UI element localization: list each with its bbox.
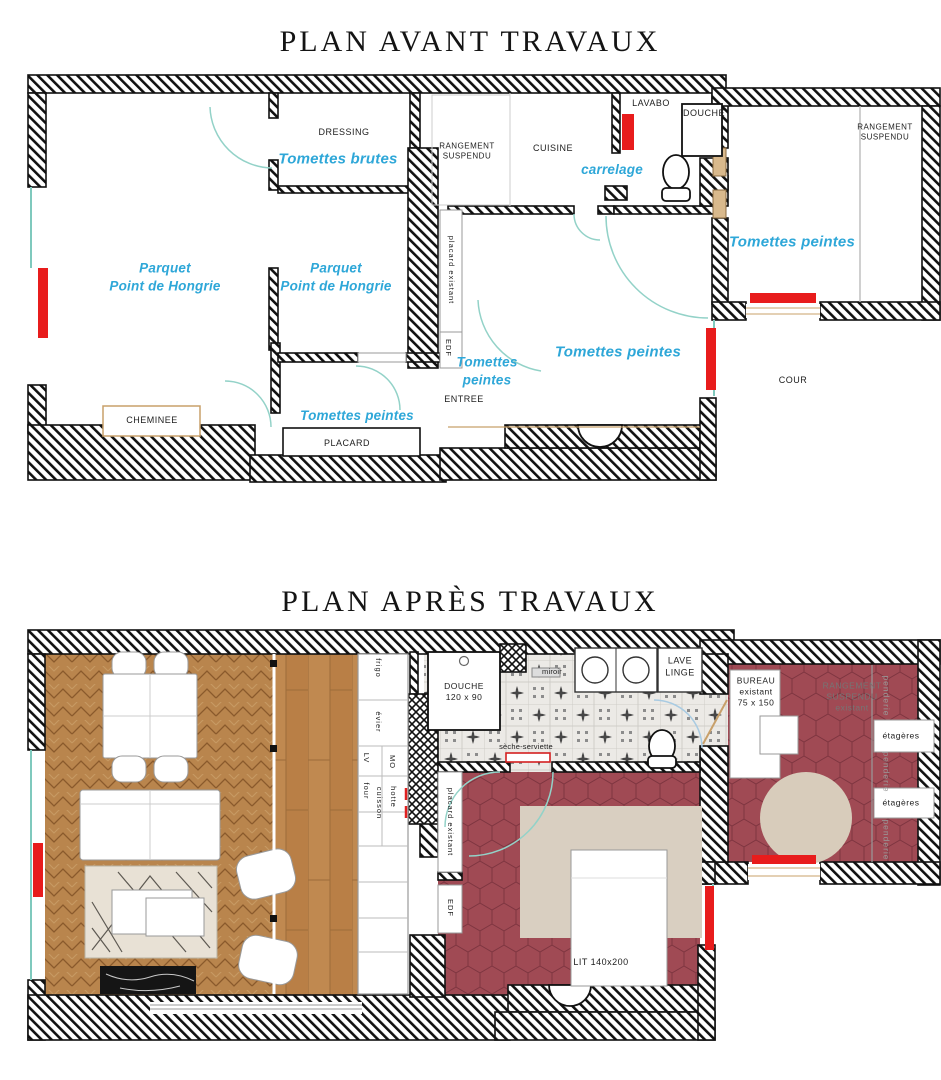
- label-douche-before: DOUCHE: [683, 108, 725, 120]
- label-tomettes-peintes-entree-1: Tomettes peintes: [456, 353, 517, 388]
- label-tomettes-brutes: Tomettes brutes: [278, 149, 397, 169]
- radiator: [622, 114, 634, 150]
- label-evier: évier: [373, 711, 383, 732]
- title-plan-before: PLAN AVANT TRAVAUX: [280, 25, 661, 59]
- chair: [112, 756, 146, 782]
- towel-warmer: [506, 753, 550, 762]
- label-rangement-suspendu-left: RANGEMENT SUSPENDU: [439, 142, 495, 163]
- label-parquet-hongrie-2: Parquet Point de Hongrie: [280, 259, 391, 294]
- basin: [582, 657, 608, 683]
- radiator: [705, 886, 714, 950]
- label-etageres-1: étagères: [882, 730, 919, 741]
- label-dressing: DRESSING: [318, 127, 369, 139]
- label-placard-existant-after: placard existant: [445, 788, 455, 857]
- radiator: [38, 268, 48, 338]
- label-lv: LV: [361, 753, 371, 764]
- label-placard: PLACARD: [324, 438, 370, 450]
- label-bureau: BUREAU existant 75 x 150: [737, 675, 775, 708]
- label-rangement-suspendu-right: RANGEMENT SUSPENDU: [857, 123, 913, 144]
- label-frigo: frigo: [373, 658, 383, 678]
- label-penderie-3: penderie: [880, 819, 891, 860]
- side-table: [146, 898, 204, 936]
- label-placard-existant-before: placard existant: [446, 236, 456, 305]
- label-etageres-2: étagères: [882, 797, 919, 808]
- label-lave-linge: LAVE LINGE: [665, 655, 695, 678]
- label-seche-serviette: sèche-serviette: [499, 742, 553, 752]
- label-penderie-1: penderie: [880, 675, 891, 716]
- toilet-after: [648, 730, 676, 768]
- label-cheminee: CHEMINEE: [126, 415, 178, 427]
- label-miroir: miroir: [542, 667, 562, 677]
- radiator: [752, 855, 816, 864]
- label-tomettes-peintes-entree-2: Tomettes peintes: [555, 342, 681, 362]
- chair: [154, 756, 188, 782]
- radiator: [750, 293, 816, 303]
- label-hotte: hotte: [388, 786, 398, 808]
- desk-chair: [760, 716, 798, 754]
- label-tomettes-peintes-room: Tomettes peintes: [300, 407, 414, 425]
- label-edf-after: EDF: [445, 899, 455, 917]
- label-four: four: [361, 783, 371, 800]
- label-cuisson: cuisson: [374, 787, 384, 819]
- shower-drain: [460, 657, 469, 666]
- label-cuisine: CUISINE: [533, 143, 573, 155]
- label-cour: COUR: [779, 375, 808, 387]
- floorplan-page: PLAN AVANT TRAVAUX PLAN APRÈS TRAVAUX DR…: [0, 0, 941, 1080]
- label-entree: ENTREE: [444, 394, 484, 406]
- basin: [623, 657, 649, 683]
- round-rug: [760, 772, 852, 864]
- label-mo: MO: [387, 755, 397, 769]
- label-lit: LIT 140x200: [573, 957, 628, 969]
- label-carrelage: carrelage: [581, 161, 643, 179]
- radiator: [33, 843, 43, 897]
- label-parquet-hongrie-1: Parquet Point de Hongrie: [109, 259, 220, 294]
- label-tomettes-peintes-right: Tomettes peintes: [729, 232, 855, 252]
- label-lavabo: LAVABO: [632, 98, 670, 110]
- label-douche-after: DOUCHE 120 x 90: [444, 681, 484, 703]
- label-penderie-2: penderie: [880, 751, 891, 792]
- plan-after: [28, 630, 940, 1040]
- label-edf-before: EDF: [443, 339, 453, 357]
- kitchen-counter: [358, 654, 408, 994]
- title-plan-after: PLAN APRÈS TRAVAUX: [281, 585, 658, 619]
- toilet-before: [662, 155, 690, 201]
- radiator: [706, 328, 716, 390]
- fireplace-marble: [100, 966, 196, 994]
- label-rangement-suspendu-after: RANGEMENT SUSPENDU existant: [823, 680, 882, 713]
